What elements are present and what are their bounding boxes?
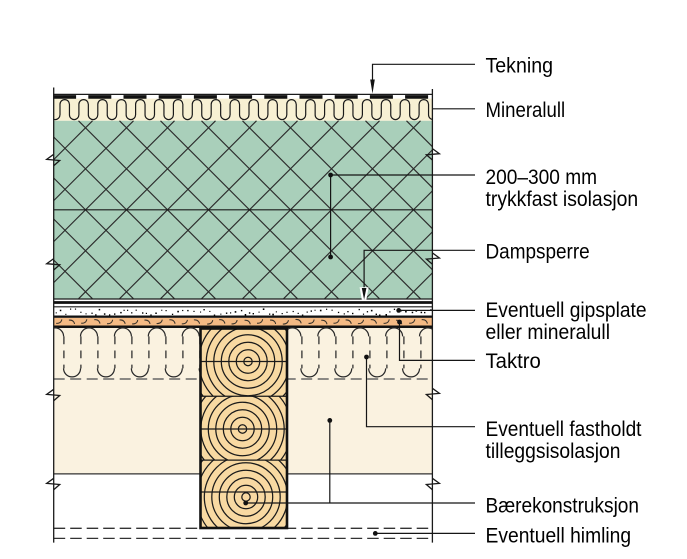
- svg-text:eller mineralull: eller mineralull: [486, 321, 611, 344]
- svg-text:Taktro: Taktro: [486, 350, 541, 373]
- svg-text:Tekning: Tekning: [486, 55, 554, 78]
- svg-text:Dampsperre: Dampsperre: [486, 240, 590, 263]
- svg-text:Mineralull: Mineralull: [486, 99, 566, 122]
- svg-text:200–300 mm: 200–300 mm: [486, 166, 598, 189]
- svg-text:Eventuell gipsplate: Eventuell gipsplate: [486, 299, 647, 322]
- svg-text:tilleggsisolasjon: tilleggsisolasjon: [486, 440, 621, 463]
- svg-text:Eventuell himling: Eventuell himling: [486, 525, 632, 548]
- svg-text:trykkfast isolasjon: trykkfast isolasjon: [486, 188, 639, 211]
- svg-text:Bærekonstruksjon: Bærekonstruksjon: [486, 494, 640, 517]
- svg-text:Eventuell fastholdt: Eventuell fastholdt: [486, 418, 642, 441]
